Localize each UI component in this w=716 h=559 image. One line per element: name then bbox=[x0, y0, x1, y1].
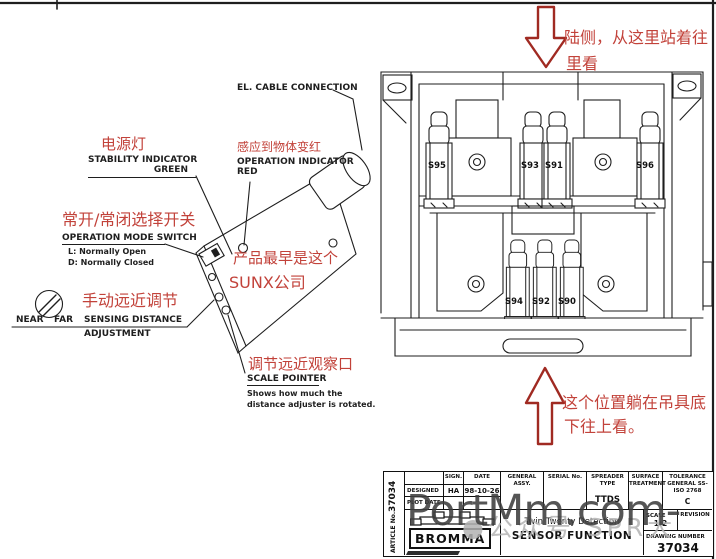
land-side-note-line1: 陆侧，从这里站着往 bbox=[564, 24, 708, 48]
bottom-view-note-line1: 这个位置躺在吊具底 bbox=[562, 389, 706, 413]
sensor-tag-s93: S93 bbox=[521, 161, 539, 171]
sensor-tag-s92: S92 bbox=[532, 297, 550, 307]
sensor-tag-s96: S96 bbox=[636, 161, 654, 171]
bottom-view-note-line2: 下往上看。 bbox=[564, 413, 644, 437]
mode-normally-open-label: L: Normally Open bbox=[68, 247, 146, 256]
stability-indicator-line2: GREEN bbox=[88, 165, 196, 175]
date-header: DATE bbox=[464, 472, 501, 485]
manual-adjust-label-cn: 手动远近调节 bbox=[82, 292, 178, 310]
article-number-strip: 37034 ARTICLE No. bbox=[384, 472, 405, 555]
article-number-label: ARTICLE No. bbox=[390, 512, 397, 553]
adjustment-label: ADJUSTMENT bbox=[84, 329, 151, 339]
sign-header: SIGN. bbox=[444, 472, 464, 485]
sunx-note-line2-cn: SUNX公司 bbox=[229, 274, 306, 292]
stability-indicator-label: STABILITY INDICATOR GREEN bbox=[88, 155, 196, 178]
scale-pointer-note-line1: Shows how much the bbox=[247, 389, 342, 398]
land-side-note-line2: 里看 bbox=[566, 50, 598, 74]
mode-normally-closed-label: D: Normally Closed bbox=[68, 258, 154, 267]
near-label: NEAR bbox=[16, 315, 44, 325]
power-light-label-cn: 电源灯 bbox=[101, 136, 146, 153]
up-arrow-icon bbox=[526, 368, 564, 444]
sense-red-label-cn: 感应到物体变红 bbox=[237, 141, 321, 155]
operation-indicator-label: OPERATION INDICATOR RED bbox=[237, 157, 354, 178]
down-arrow-icon bbox=[526, 7, 566, 67]
scale-window-label-cn: 调节远近观察口 bbox=[248, 356, 353, 373]
mode-switch-label-cn: 常开/常闭选择开关 bbox=[62, 211, 195, 229]
adjuster-knob-icon bbox=[36, 291, 63, 318]
stability-indicator-line1: STABILITY INDICATOR bbox=[88, 155, 196, 165]
portmm-watermark: PortMm.com- bbox=[406, 486, 680, 536]
article-number-value: 37034 bbox=[388, 481, 398, 512]
sensor-tag-s95: S95 bbox=[428, 161, 446, 171]
scale-pointer-label: SCALE POINTER bbox=[247, 374, 319, 386]
cell-blank bbox=[405, 472, 444, 485]
operation-indicator-line2: RED bbox=[237, 167, 354, 177]
far-label: FAR bbox=[54, 315, 73, 325]
revision-cell: REVISION bbox=[678, 510, 712, 531]
sensor-tag-s91: S91 bbox=[545, 161, 563, 171]
scale-pointer-note-line2: distance adjuster is rotated. bbox=[247, 400, 375, 409]
sunx-note-line1-cn: 产品最早是这个 bbox=[233, 250, 338, 267]
bromma-group-text bbox=[406, 551, 460, 555]
operation-indicator-line1: OPERATION INDICATOR bbox=[237, 157, 354, 167]
operation-mode-switch-label: OPERATION MODE SWITCH bbox=[62, 233, 165, 245]
spreader-sensor-drawing: EL. CABLE CONNECTION 电源灯 STABILITY INDIC… bbox=[0, 0, 716, 559]
sensor-tag-s90: S90 bbox=[558, 297, 576, 307]
sensing-distance-label: SENSING DISTANCE bbox=[84, 315, 182, 325]
spreader-type-label: SPREADER TYPE bbox=[591, 474, 624, 487]
sensor-tag-s94: S94 bbox=[505, 297, 523, 307]
bottom-tray bbox=[381, 318, 703, 356]
cable-connection-label: EL. CABLE CONNECTION bbox=[237, 83, 358, 93]
